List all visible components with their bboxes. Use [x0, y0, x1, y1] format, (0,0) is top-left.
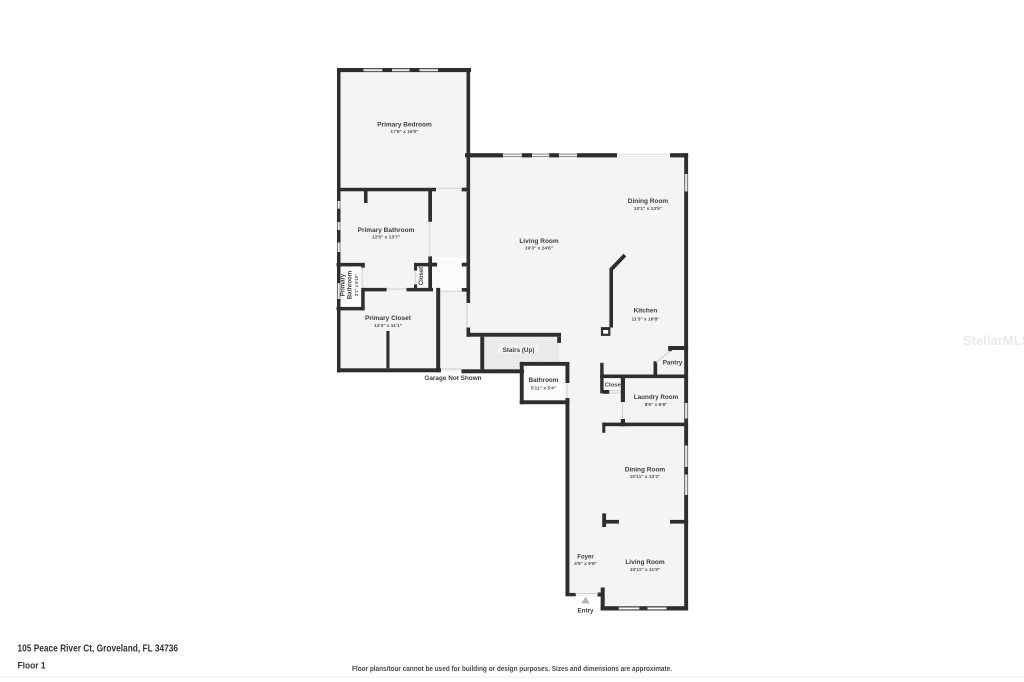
svg-text:Closet: Closet — [419, 267, 425, 285]
svg-text:4'9" x 9'8": 4'9" x 9'8" — [574, 561, 597, 567]
svg-text:Bathroom: Bathroom — [529, 377, 559, 384]
svg-text:Closet: Closet — [605, 382, 623, 388]
svg-text:19'3" x 24'6": 19'3" x 24'6" — [525, 246, 553, 252]
svg-text:10'1" x 13'5": 10'1" x 13'5" — [634, 206, 662, 212]
svg-text:Floor 1: Floor 1 — [18, 661, 47, 672]
svg-text:Foyer: Foyer — [577, 554, 594, 561]
svg-text:10'11" x 13'2": 10'11" x 13'2" — [630, 474, 661, 480]
svg-text:Kitchen: Kitchen — [634, 307, 658, 314]
svg-text:Bathroom: Bathroom — [348, 271, 354, 299]
svg-text:Primary: Primary — [341, 273, 347, 296]
svg-text:17'6" x 16'0": 17'6" x 16'0" — [390, 129, 418, 135]
svg-text:Primary Bathroom: Primary Bathroom — [358, 227, 415, 234]
svg-text:105 Peace River Ct, Groveland,: 105 Peace River Ct, Groveland, FL 34736 — [18, 644, 179, 655]
svg-text:10'11" x 11'9": 10'11" x 11'9" — [630, 567, 660, 573]
svg-text:Living Room: Living Room — [519, 238, 559, 245]
svg-text:Stairs (Up): Stairs (Up) — [503, 347, 535, 354]
svg-text:Pantry: Pantry — [663, 360, 683, 367]
svg-text:8'9" x 6'9": 8'9" x 6'9" — [645, 402, 668, 408]
svg-text:Floor plans/tour cannot be use: Floor plans/tour cannot be used for buil… — [352, 664, 672, 673]
svg-text:12'5" x 13'7": 12'5" x 13'7" — [372, 235, 400, 241]
svg-text:Living Room: Living Room — [625, 559, 665, 566]
svg-text:Laundry Room: Laundry Room — [634, 394, 679, 401]
svg-text:Primary Bedroom: Primary Bedroom — [377, 121, 432, 128]
svg-text:Garage Not Shown: Garage Not Shown — [424, 375, 481, 382]
svg-text:Primary Closet: Primary Closet — [365, 315, 412, 322]
svg-text:11'3" x 16'8": 11'3" x 16'8" — [632, 317, 660, 323]
svg-text:StellarMLS: StellarMLS — [963, 333, 1024, 348]
svg-text:13'3" x 11'1": 13'3" x 11'1" — [374, 323, 402, 329]
svg-text:2'1" x 5'10": 2'1" x 5'10" — [354, 274, 359, 296]
svg-text:Dining Room: Dining Room — [625, 467, 666, 474]
svg-text:5'11" x 5'4": 5'11" x 5'4" — [531, 385, 556, 391]
svg-text:Entry: Entry — [577, 607, 594, 614]
svg-text:Dining Room: Dining Room — [628, 198, 669, 205]
